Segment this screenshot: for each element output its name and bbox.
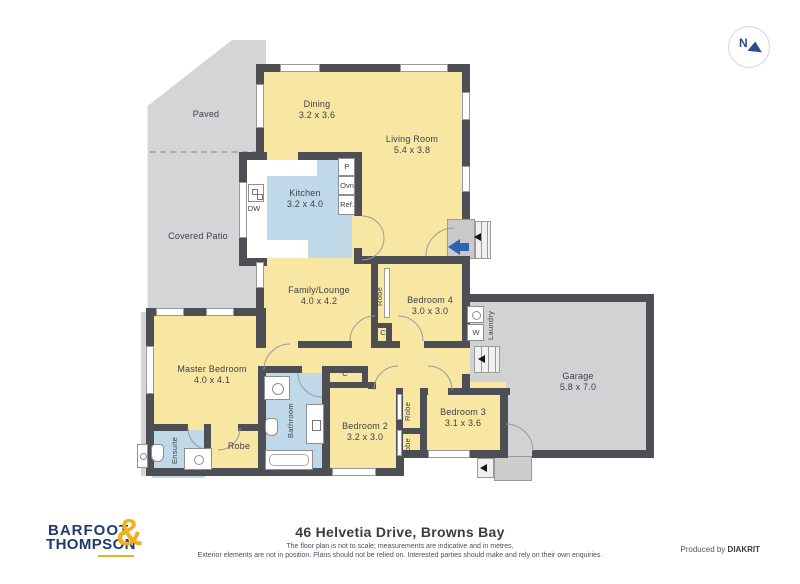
bedroom4-label: Bedroom 43.0 x 3.0 [407,295,453,316]
bathtub-icon [265,450,313,470]
bathroom-toilet-icon [265,418,278,436]
address-title: 46 Helvetia Drive, Browns Bay [0,524,800,540]
wall-segment [298,341,352,348]
produced-by: Produced by DIAKRIT [680,545,760,554]
bedroom3-label: Bedroom 33.1 x 3.6 [440,407,486,428]
window [280,64,320,72]
wall-segment [420,388,428,395]
compass-arrow-icon [748,42,765,59]
ensuite-shower-icon [184,448,212,470]
ensuite-label: Ensuite [170,426,179,474]
covered-patio-label: Covered Patio [168,231,228,242]
window [256,262,264,288]
sliding-robe-door [397,394,402,420]
window [256,84,264,128]
master-bedroom-label: Master Bedroom4.0 x 4.1 [177,364,246,385]
paved-label: Paved [193,109,220,120]
laundry-label: Laundry [486,302,495,348]
window [206,308,234,316]
compass: N [728,26,770,68]
kitchen-bench-bottom [258,240,308,258]
interior-stairs-arrow-icon [478,355,485,363]
wall-segment [462,294,654,302]
producer-name: DIAKRIT [728,545,760,554]
produced-by-label: Produced by [680,545,725,554]
wall-segment [368,382,376,389]
sliding-robe-door [397,430,402,456]
wall-segment [326,382,366,388]
family-lounge-label: Family/Lounge4.0 x 4.2 [288,285,350,306]
fridge-label: Ref. [340,200,354,209]
cupboard-hall-label: C [380,328,385,337]
living-room-label: Living Room5.4 x 3.8 [386,134,438,155]
compass-n-label: N [739,36,748,50]
kitchen-counter-top [267,160,317,176]
wall-segment [532,450,654,458]
wall-segment [258,308,266,348]
dishwasher-label: DW [248,204,261,213]
bathroom-vanity-icon [306,404,324,444]
window [400,64,448,72]
pantry-label: P [344,162,349,171]
window [428,450,470,458]
garage-step-arrow-icon [480,464,487,472]
wall-segment [420,388,427,450]
sliding-robe-door [384,268,390,318]
wall-segment [354,152,362,216]
garage-exterior-landing [494,456,532,481]
wall-segment [646,294,654,458]
window [156,308,184,316]
washer-label: W [472,328,479,337]
wall-segment [386,325,392,347]
floor-plan-page: Paved Covered Patio Dining3.2 x 3.6 Livi… [0,0,800,584]
window [332,468,376,476]
bathroom-label: Bathroom [286,394,295,448]
window [462,166,470,192]
oven-label: Ovn [340,181,354,190]
cupboard-bed2-label: C [342,369,347,378]
wall-segment [238,424,260,431]
wall-segment [258,366,302,373]
laundry-tub-icon [467,306,484,323]
wall-segment [500,388,508,458]
cooktop-icon [248,184,264,202]
window [146,346,154,394]
master-robe-label: Robe [228,441,250,452]
dining-label: Dining3.2 x 3.6 [299,99,335,120]
garage-label: Garage5.8 x 7.0 [560,371,596,392]
ensuite-toilet-icon [151,444,164,462]
bedroom2-label: Bedroom 23.2 x 3.0 [342,421,388,442]
entry-steps-arrow-icon [474,233,481,241]
bedroom4-robe-label: Robe [375,272,384,320]
window [239,182,247,238]
robe-a-label: Robe [403,396,412,426]
wall-segment [150,424,188,431]
kitchen-label: Kitchen3.2 x 4.0 [287,188,323,209]
window [462,92,470,120]
exterior-meter-icon [137,444,148,468]
wall-segment [462,64,470,219]
robe-b-label: Robe [403,432,412,462]
wall-segment [448,388,506,395]
